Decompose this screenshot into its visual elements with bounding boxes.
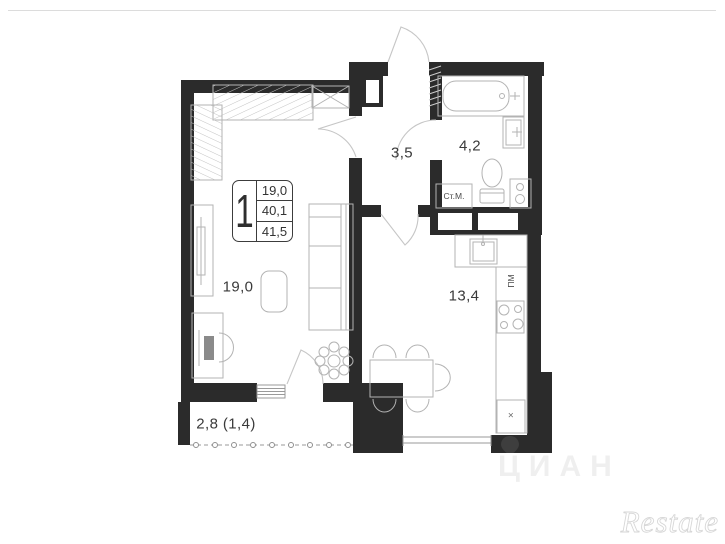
boiler-icon <box>510 179 531 208</box>
living-room-area-label: 19,0 <box>223 279 254 296</box>
balcony-area-label: 2,8 (1,4) <box>196 416 255 433</box>
vent-shaft-right <box>478 213 518 230</box>
plant-icon <box>315 342 353 379</box>
kitchen-counter-side <box>496 267 527 433</box>
entry-door-arc <box>388 27 429 62</box>
balcony-railing <box>190 443 353 448</box>
wall-top-entry-left <box>362 62 388 76</box>
kitchen-counter-top <box>455 235 527 267</box>
sofa-icon <box>309 204 353 330</box>
legend-total-area: 41,5 <box>257 221 292 241</box>
chair-icon <box>406 345 429 358</box>
toilet-icon <box>480 159 504 203</box>
wardrobe-top-icon <box>213 85 313 120</box>
desk-chair-icon <box>219 333 233 362</box>
kitchen-area-label: 13,4 <box>449 288 480 305</box>
shaft-entry <box>366 80 379 103</box>
wardrobe-side-icon <box>191 105 222 180</box>
washing-machine-label: Ст.М. <box>444 191 465 201</box>
bathroom-sink-icon <box>503 117 524 148</box>
cian-watermark: ЦИАН <box>498 450 621 484</box>
legend-living-area: 19,0 <box>257 181 292 200</box>
area-legend: 1 19,0 40,1 41,5 <box>232 180 293 242</box>
kitchen-sink-icon <box>470 235 497 264</box>
legend-values: 19,0 40,1 41,5 <box>256 181 292 241</box>
chair-icon <box>373 345 396 358</box>
hallway-area-label: 3,5 <box>391 145 413 162</box>
chair-icon <box>435 364 450 391</box>
tv-console-icon <box>191 205 213 296</box>
dishwasher-label: ПМ <box>506 274 516 287</box>
wall-right-kitchen <box>527 235 541 372</box>
legend-area-no-balcony: 40,1 <box>257 200 292 220</box>
floor-plan: 1 19,0 40,1 41,5 19,0 3,5 4,2 13,4 2,8 (… <box>0 0 725 544</box>
wall-kitchen-bottom-left <box>353 383 403 453</box>
coffee-table-icon <box>261 271 287 312</box>
restate-watermark: Restate <box>621 504 719 540</box>
fridge-mark-label: × <box>508 411 514 422</box>
bathroom-area-label: 4,2 <box>459 138 481 155</box>
wall-balcony-stub <box>178 402 190 445</box>
bathroom-fixtures <box>436 76 531 208</box>
wall-mid-upper <box>349 62 362 116</box>
desk-icon <box>192 313 223 378</box>
balcony-door-arc <box>287 350 323 384</box>
wall-living-bottom-left <box>181 383 257 402</box>
wall-living-bottom-right <box>323 383 353 402</box>
legend-rooms-count: 1 <box>236 181 253 241</box>
wall-top-bathroom <box>429 62 544 76</box>
wall-hall-stub-left <box>362 205 381 217</box>
chair-icon <box>406 399 429 412</box>
kitchen-door-arc <box>381 214 418 245</box>
bathtub-icon <box>438 76 524 116</box>
vent-shaft-left <box>438 213 472 230</box>
stove-icon <box>497 301 524 333</box>
living-door-arc <box>318 117 356 157</box>
